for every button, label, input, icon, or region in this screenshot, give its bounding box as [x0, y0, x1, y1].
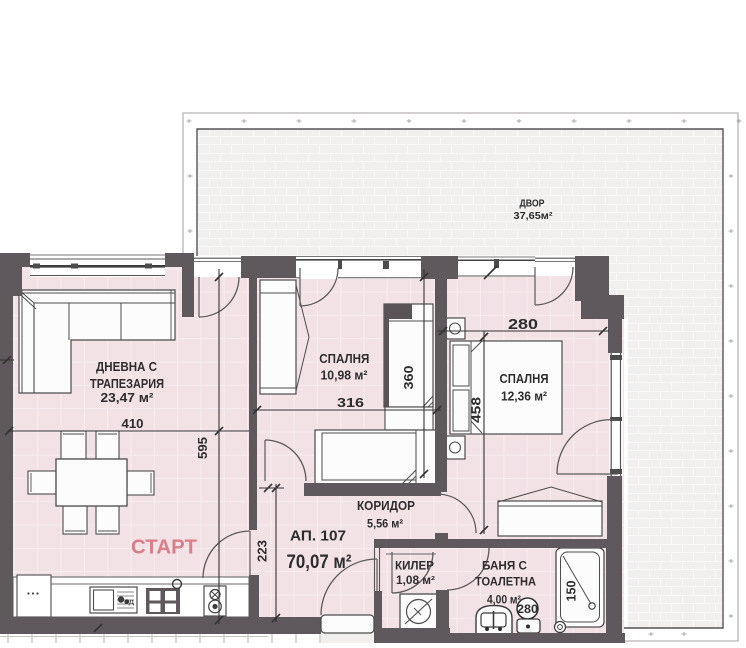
svg-text:70,07 м²: 70,07 м² [287, 552, 352, 573]
svg-text:458: 458 [469, 397, 484, 423]
svg-text:410: 410 [122, 416, 144, 431]
svg-text:280: 280 [508, 317, 538, 333]
svg-text:316: 316 [337, 395, 364, 410]
svg-text:4,00 м²: 4,00 м² [487, 595, 521, 607]
svg-text:КОРИДОР: КОРИДОР [357, 498, 415, 513]
svg-text:360: 360 [401, 366, 416, 390]
svg-text:КИЛЕР: КИЛЕР [395, 559, 434, 573]
svg-text:150: 150 [565, 580, 579, 601]
svg-text:ТОАЛЕТНА: ТОАЛЕТНА [475, 575, 536, 589]
svg-text:БАНЯ С: БАНЯ С [482, 559, 527, 573]
svg-text:сд: сд [124, 597, 135, 606]
svg-text:СПАЛНЯ: СПАЛНЯ [319, 351, 369, 366]
svg-text:ТРАПЕЗАРИЯ: ТРАПЕЗАРИЯ [90, 376, 164, 391]
svg-text:АП. 107: АП. 107 [290, 528, 346, 545]
svg-text:5,56 м²: 5,56 м² [367, 517, 403, 531]
svg-text:СТАРТ: СТАРТ [131, 537, 197, 559]
svg-text:СПАЛНЯ: СПАЛНЯ [500, 371, 549, 386]
svg-text:10,98 м²: 10,98 м² [321, 368, 369, 383]
svg-text:23,47 м²: 23,47 м² [101, 390, 155, 405]
svg-text:ДВОР: ДВОР [520, 199, 545, 210]
svg-text:1,08 м²: 1,08 м² [396, 575, 435, 587]
svg-text:37,65м²: 37,65м² [514, 211, 554, 222]
svg-text:595: 595 [195, 437, 210, 459]
svg-text:12,36 м²: 12,36 м² [501, 389, 548, 404]
svg-text:223: 223 [255, 540, 270, 562]
svg-text:ДНЕВНА С: ДНЕВНА С [96, 359, 158, 374]
